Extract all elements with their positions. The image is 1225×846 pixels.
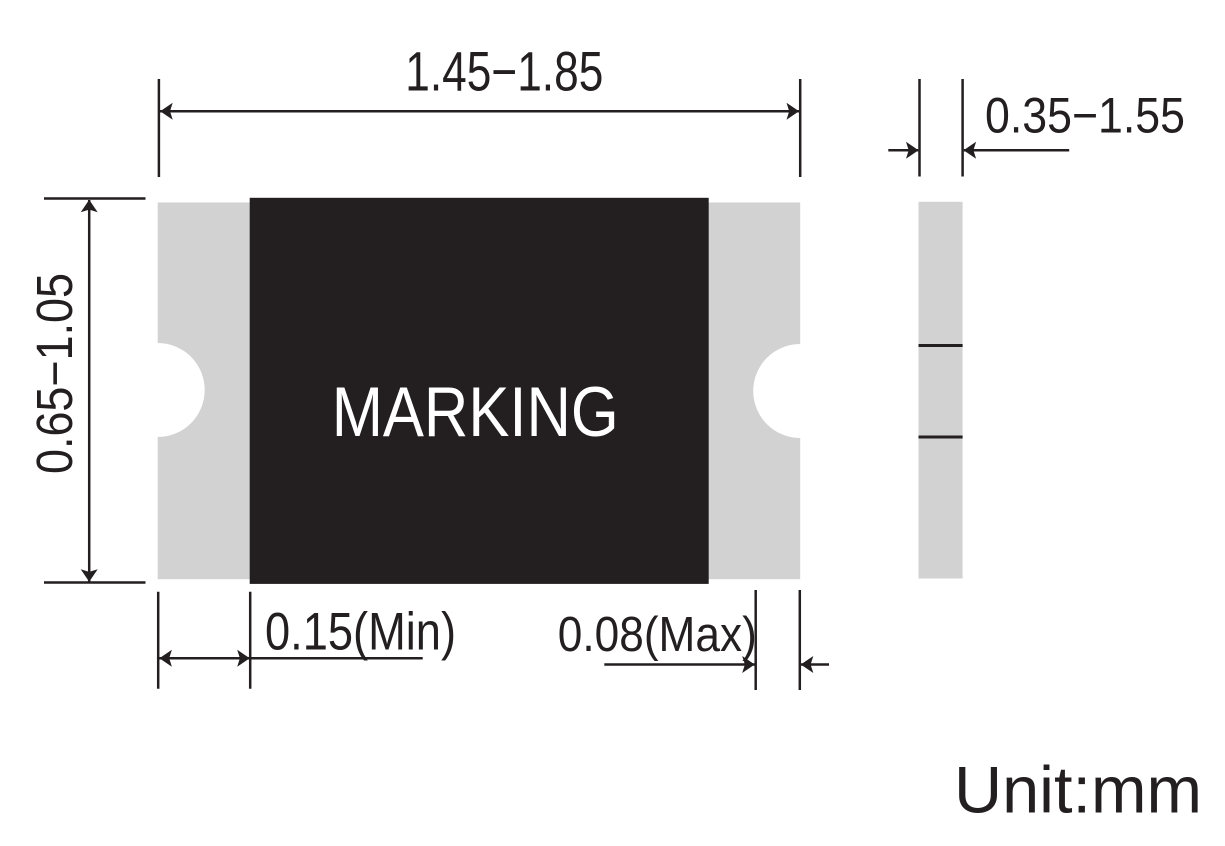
svg-text:Unit:mm: Unit:mm (954, 753, 1202, 826)
svg-text:MARKING: MARKING (332, 372, 619, 451)
svg-text:0.08(Max): 0.08(Max) (558, 608, 757, 662)
svg-text:0.15(Min): 0.15(Min) (265, 602, 456, 661)
svg-text:0.65−1.05: 0.65−1.05 (26, 273, 83, 474)
svg-text:0.35−1.55: 0.35−1.55 (985, 87, 1185, 144)
svg-text:1.45−1.85: 1.45−1.85 (405, 40, 603, 102)
